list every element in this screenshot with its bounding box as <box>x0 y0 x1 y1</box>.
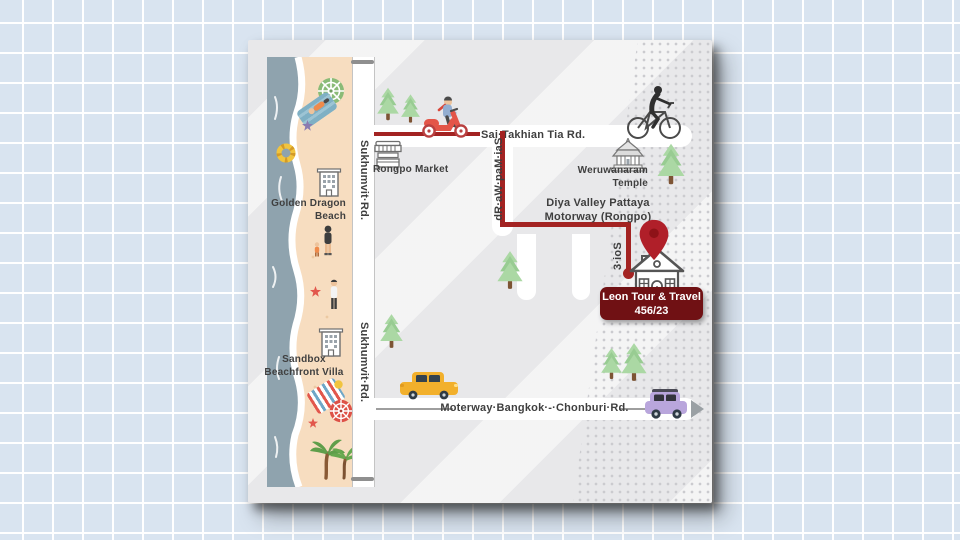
rongpo-market-label: Rongpo Market <box>373 164 448 177</box>
weruwanaram-temple-label: Weruwanaram Temple <box>548 165 648 190</box>
yellow-car-icon <box>398 370 460 400</box>
road-arrow-icon <box>691 400 704 418</box>
sukhumvit-road-label-bottom: Sukhumvit·Rd. <box>356 322 370 402</box>
sai-map-wa-road-label: .dR·aW·paM·iaS <box>493 137 507 224</box>
pine-tree-icon <box>496 248 524 292</box>
pine-tree-icon <box>376 84 400 124</box>
golden-dragon-beach-label: Golden Dragon Beach <box>268 198 346 223</box>
hotel-building-icon <box>318 327 344 357</box>
bicycle-icon <box>625 82 681 140</box>
person-icon <box>312 242 322 257</box>
person-icon <box>320 225 336 259</box>
pine-tree-icon <box>656 143 686 185</box>
scooter-icon <box>418 96 472 138</box>
soi3-label: 3·ioS <box>612 242 626 270</box>
road-endcap <box>351 477 374 481</box>
purple-car-icon <box>643 388 689 421</box>
starfish-icon <box>302 120 313 131</box>
umbrella-red-icon <box>328 398 354 424</box>
swim-ring-icon <box>276 143 296 163</box>
sukhumvit-road <box>352 57 375 487</box>
beach-ball-icon <box>334 380 343 389</box>
starfish-icon <box>310 286 321 297</box>
destination-address: 456/23 <box>600 304 703 318</box>
pine-tree-icon <box>620 340 648 384</box>
page-background: { "page": {"bg_color": "#d9e4f0", "grid_… <box>0 0 960 540</box>
sukhumvit-road-label-top: Sukhumvit·Rd. <box>356 140 370 220</box>
sandbox-villa-label: Sandbox Beachfront Villa <box>260 354 348 379</box>
person-icon <box>327 279 341 317</box>
location-pin-icon <box>637 218 671 262</box>
road-endcap <box>351 60 374 64</box>
hotel-building-icon <box>316 167 342 197</box>
pine-tree-icon <box>379 313 404 349</box>
destination-name: Leon Tour & Travel <box>600 290 703 304</box>
destination-badge: Leon Tour & Travel 456/23 <box>600 287 703 320</box>
map-card: Golden Dragon Beach Sandbox Beachfront V… <box>248 40 712 503</box>
motorway-stub-road <box>572 234 590 300</box>
